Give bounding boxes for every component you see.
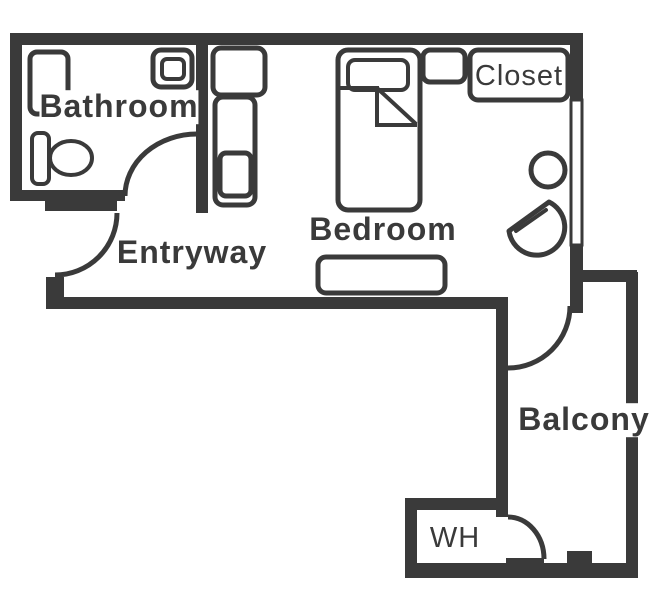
table-icon xyxy=(531,153,565,187)
wall-bathroom-bottom xyxy=(10,190,125,201)
wall-balcony-left xyxy=(496,297,508,517)
wall-left xyxy=(10,33,22,201)
wh-door-leaf xyxy=(506,558,544,565)
cabinet-top-icon xyxy=(213,48,265,95)
water-heater-label: WH xyxy=(430,523,480,553)
sink-icon xyxy=(153,50,192,87)
cabinet-inner-icon xyxy=(220,153,251,196)
closet-label: Closet xyxy=(475,61,563,91)
nightstand-icon xyxy=(423,50,465,82)
wall-wh-left xyxy=(405,498,417,568)
bathroom-label: Bathroom xyxy=(39,90,198,124)
toilet-bowl-icon xyxy=(50,141,92,175)
floor-plan: Bathroom Entryway Bedroom Balcony Closet… xyxy=(0,0,652,611)
bathroom-door-arc xyxy=(125,134,197,196)
sink-basin-icon xyxy=(162,59,184,79)
entry-door-arc xyxy=(55,213,117,275)
wall-below-window xyxy=(570,243,583,313)
window xyxy=(571,100,582,245)
toilet-tank-icon xyxy=(32,133,49,184)
entryway-label: Entryway xyxy=(117,236,267,270)
wall-wh-top xyxy=(405,498,508,510)
balcony-label: Balcony xyxy=(514,403,652,437)
wh-door-arc xyxy=(508,517,544,559)
wall-main-bottom xyxy=(46,297,508,309)
balcony-door-arc xyxy=(508,306,570,368)
dresser-icon xyxy=(318,257,445,293)
wall-top xyxy=(10,33,583,45)
blanket-fold-icon xyxy=(340,88,417,125)
pillow-icon xyxy=(348,60,408,90)
entry-door-leaf xyxy=(45,200,117,211)
wall-bottom xyxy=(405,563,638,578)
wall-bottom-stub xyxy=(567,551,592,567)
bedroom-label: Bedroom xyxy=(309,213,456,247)
wall-right-upper xyxy=(570,45,583,101)
